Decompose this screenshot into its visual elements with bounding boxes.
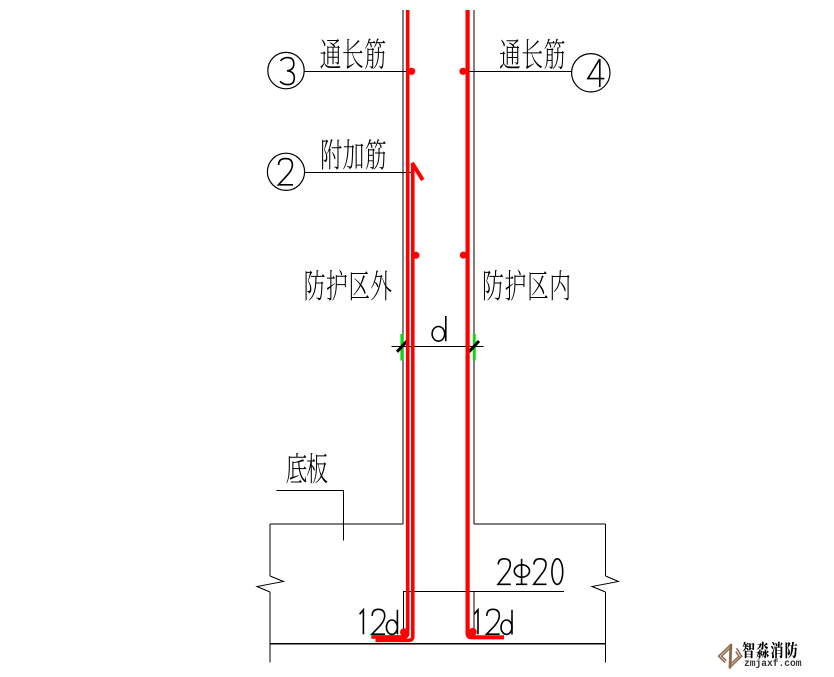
svg-text:zmjaxf.com: zmjaxf.com (744, 658, 802, 670)
